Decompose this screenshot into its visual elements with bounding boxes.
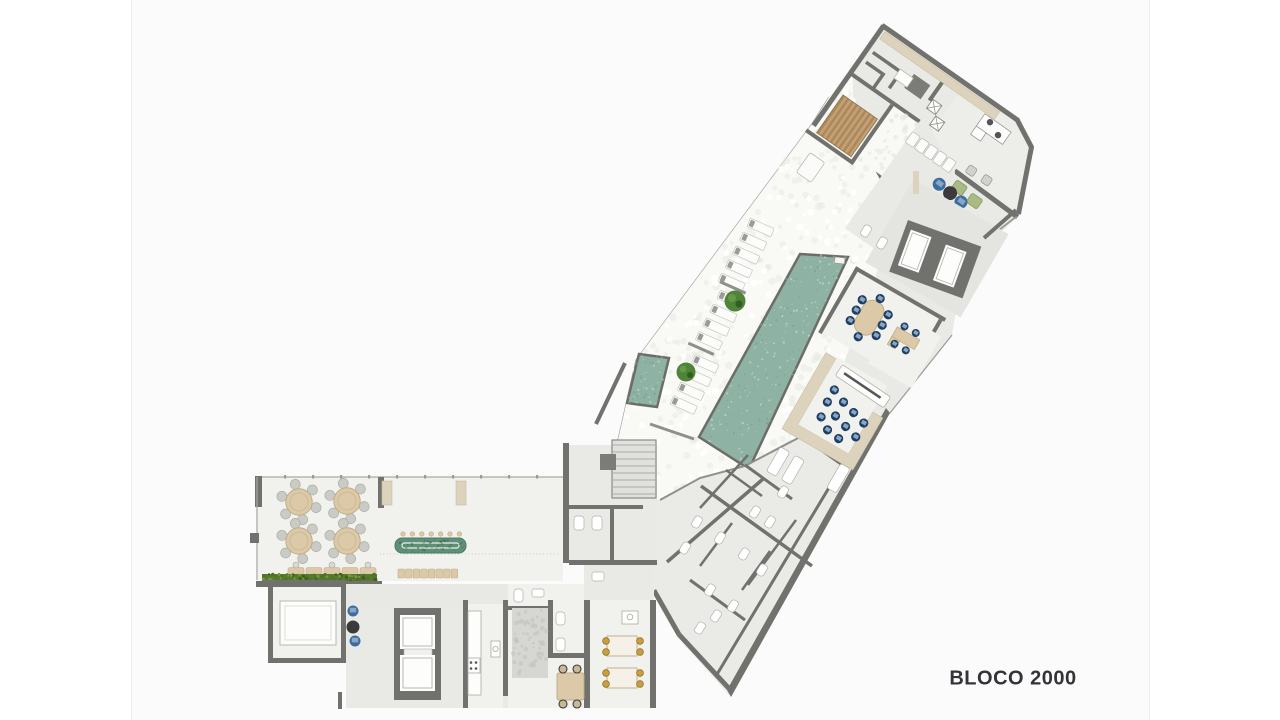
svg-text:BLOCO 2000: BLOCO 2000 [949,668,1076,690]
